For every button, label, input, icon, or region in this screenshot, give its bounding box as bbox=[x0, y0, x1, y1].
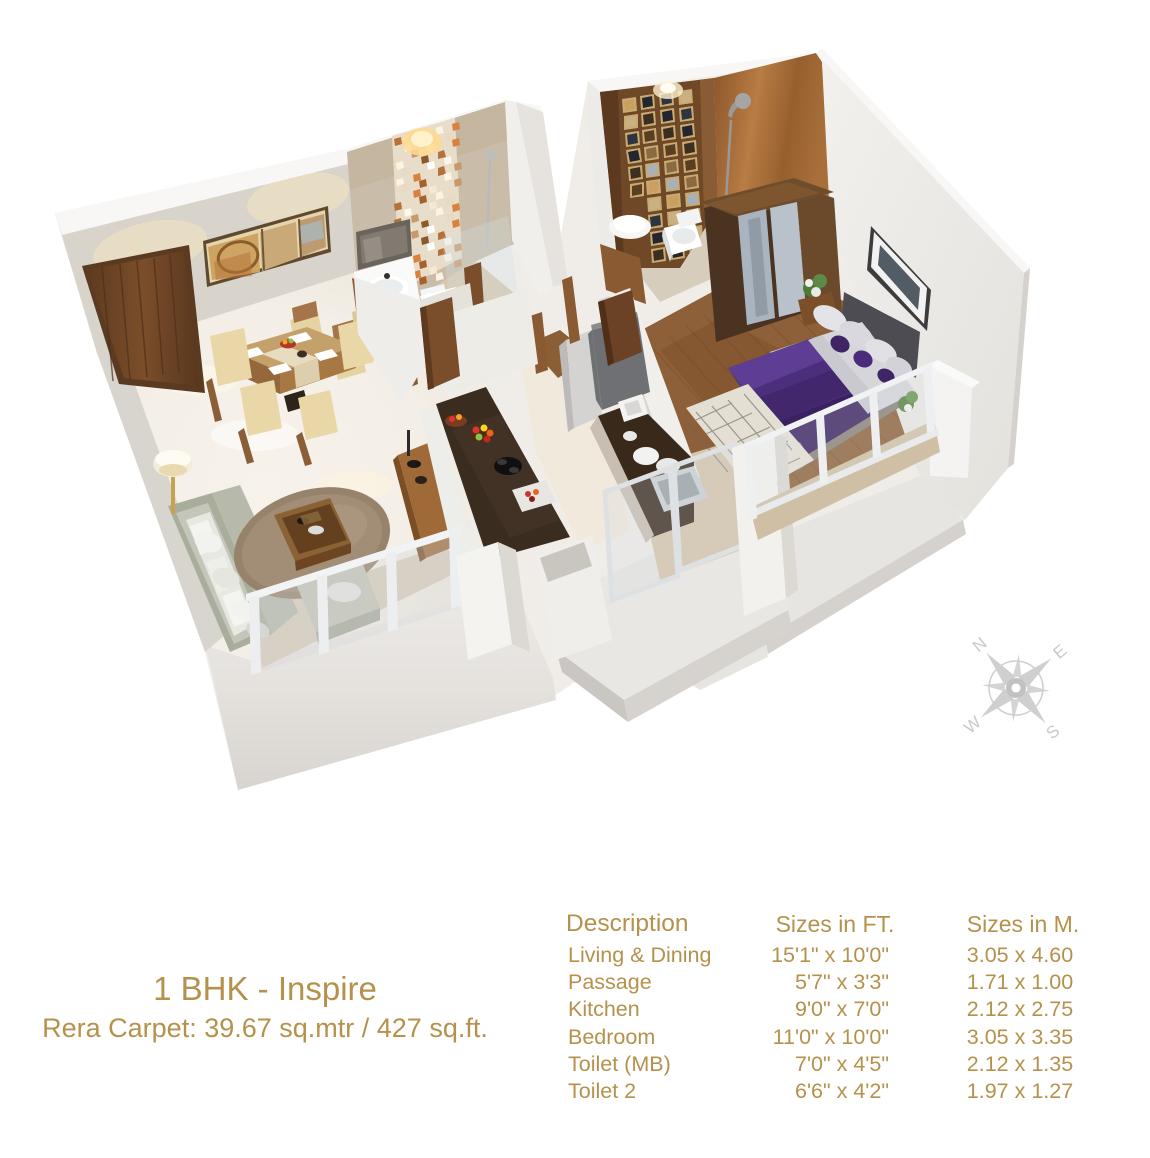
svg-text:N: N bbox=[969, 633, 991, 655]
svg-text:Description: Description bbox=[566, 910, 689, 937]
svg-text:E: E bbox=[1050, 641, 1071, 663]
svg-text:11'0" x 10'0": 11'0" x 10'0" bbox=[773, 1025, 889, 1049]
svg-text:Toilet 2: Toilet 2 bbox=[568, 1079, 636, 1103]
svg-text:Sizes in M.: Sizes in M. bbox=[967, 911, 1079, 937]
svg-text:3.05 x 3.35: 3.05 x 3.35 bbox=[967, 1025, 1073, 1049]
svg-text:6'6" x 4'2": 6'6" x 4'2" bbox=[795, 1079, 889, 1103]
svg-text:9'0" x 7'0": 9'0" x 7'0" bbox=[795, 997, 889, 1021]
svg-text:Kitchen: Kitchen bbox=[568, 997, 640, 1021]
svg-text:W: W bbox=[960, 713, 985, 738]
svg-text:2.12 x 2.75: 2.12 x 2.75 bbox=[967, 997, 1073, 1021]
svg-text:15'1" x 10'0": 15'1" x 10'0" bbox=[771, 943, 889, 967]
svg-text:2.12 x 1.35: 2.12 x 1.35 bbox=[967, 1052, 1073, 1076]
svg-text:7'0" x 4'5": 7'0" x 4'5" bbox=[795, 1052, 889, 1076]
svg-text:Passage: Passage bbox=[568, 970, 652, 994]
svg-text:3.05 x 4.60: 3.05 x 4.60 bbox=[967, 943, 1073, 967]
svg-text:Living & Dining: Living & Dining bbox=[568, 943, 711, 967]
svg-text:1.71 x 1.00: 1.71 x 1.00 bbox=[967, 970, 1073, 994]
svg-text:1.97 x 1.27: 1.97 x 1.27 bbox=[967, 1079, 1073, 1103]
svg-text:Sizes in FT.: Sizes in FT. bbox=[776, 911, 895, 937]
svg-text:Bedroom: Bedroom bbox=[568, 1025, 655, 1049]
svg-text:5'7" x 3'3": 5'7" x 3'3" bbox=[795, 970, 889, 994]
svg-text:Toilet (MB): Toilet (MB) bbox=[568, 1052, 671, 1076]
svg-text:S: S bbox=[1043, 721, 1064, 743]
